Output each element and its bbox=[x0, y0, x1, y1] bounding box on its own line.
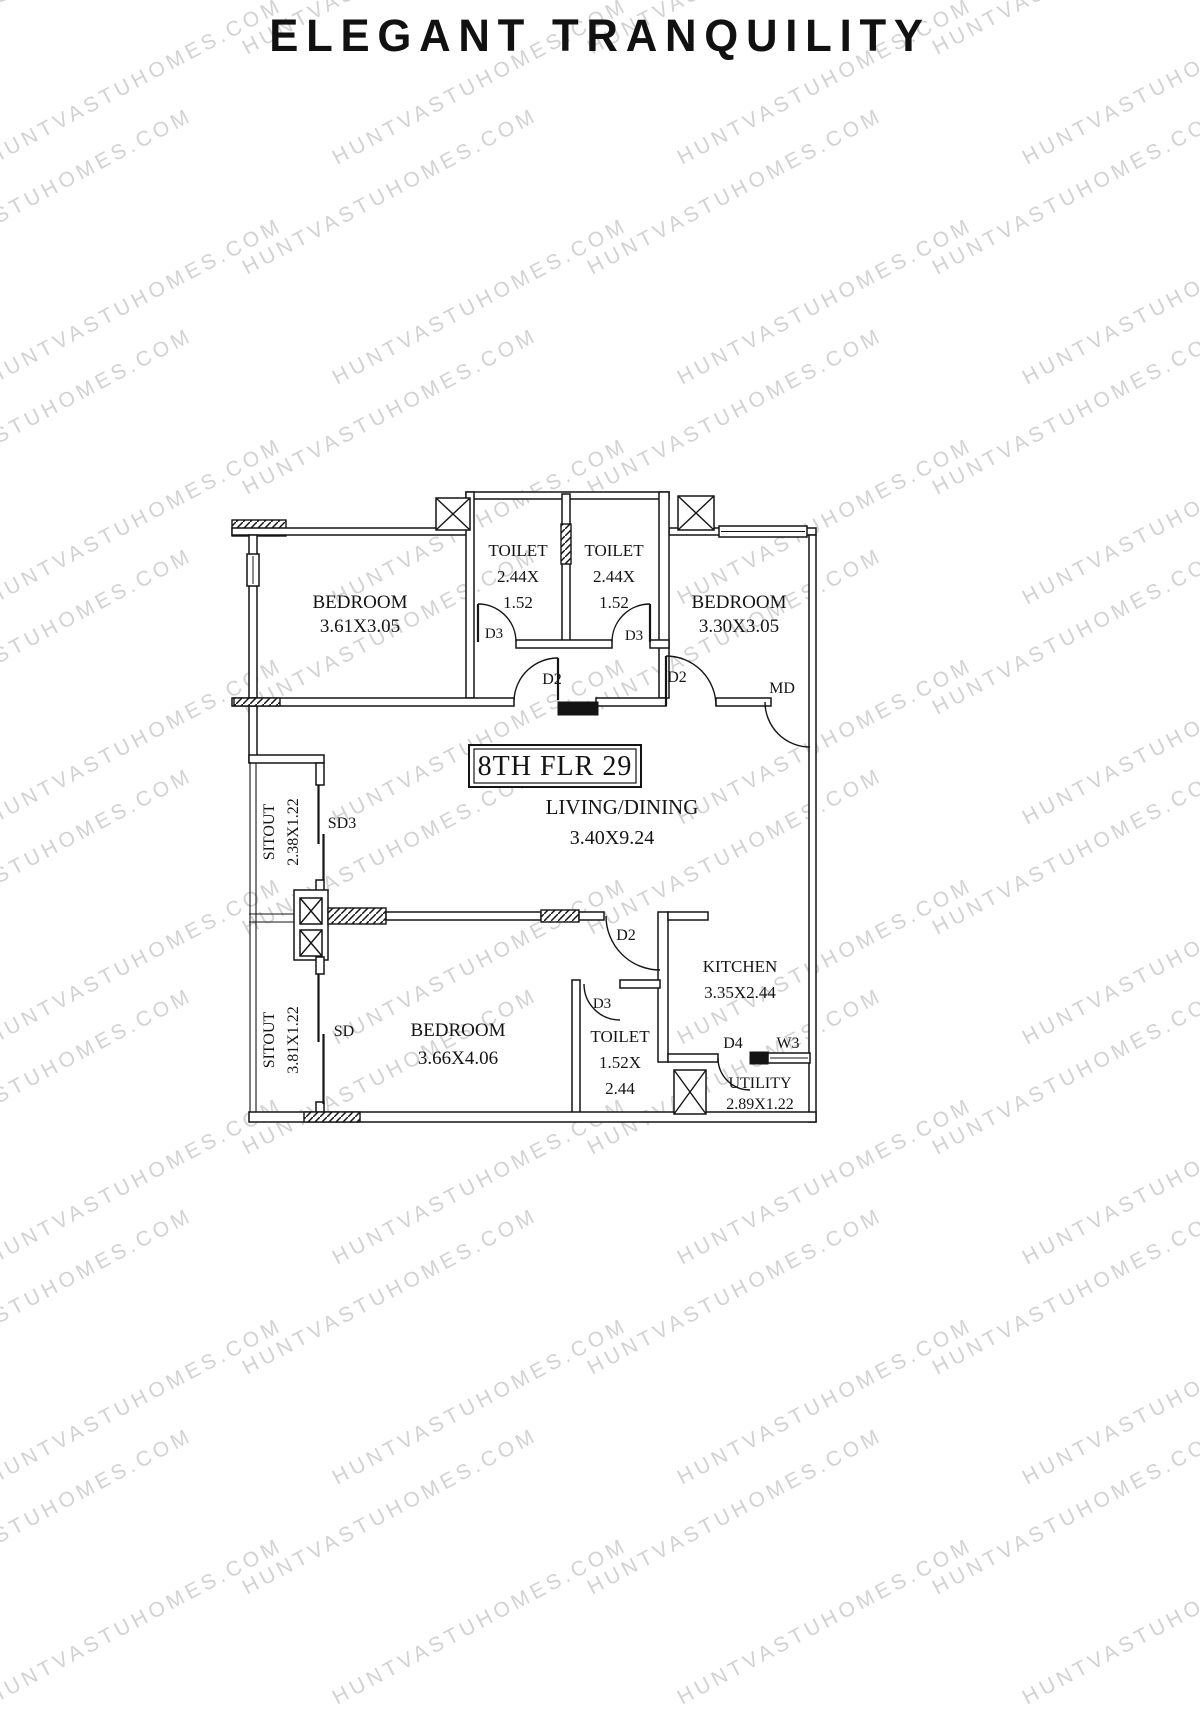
door-label-d3-toilet2: D3 bbox=[625, 628, 643, 644]
door-label-d3-toilet3: D3 bbox=[593, 996, 611, 1012]
room-label-bedroom-top-right: BEDROOM bbox=[691, 592, 786, 613]
door-label-d2-bedroom2: D2 bbox=[667, 669, 687, 686]
window-label-w3: W3 bbox=[776, 1035, 799, 1052]
room-dims-bedroom-top-left: 3.61X3.05 bbox=[320, 616, 400, 637]
room-dims-toilet-top-right-2: 1.52 bbox=[599, 593, 629, 612]
room-label-living-dining: LIVING/DINING bbox=[546, 795, 699, 819]
door-label-d4-utility: D4 bbox=[723, 1035, 743, 1052]
room-dims-toilet-bottom-1: 1.52X bbox=[599, 1053, 641, 1072]
door-label-sd: SD bbox=[334, 1023, 354, 1040]
hatched-wall-midwall-right bbox=[541, 910, 579, 922]
page-title: ELEGANT TRANQUILITY bbox=[18, 10, 1182, 62]
room-dims-sitout-lower: 3.81X1.22 bbox=[285, 1006, 302, 1074]
hatched-wall-bottom bbox=[304, 1112, 360, 1122]
hatched-wall-toilets bbox=[561, 524, 571, 564]
room-label-bedroom-bottom: BEDROOM bbox=[410, 1020, 505, 1041]
room-dims-toilet-top-left-2: 1.52 bbox=[503, 593, 533, 612]
room-dims-sitout-upper: 2.38X1.22 bbox=[285, 798, 302, 866]
door-arc-main-door bbox=[765, 702, 810, 747]
room-dims-toilet-bottom-2: 2.44 bbox=[605, 1079, 635, 1098]
room-dims-living-dining: 3.40X9.24 bbox=[570, 827, 654, 849]
walls bbox=[232, 492, 816, 1122]
room-label-toilet-top-left: TOILET bbox=[488, 541, 548, 560]
watermark-text: HUNTVASTUHOMES.COM bbox=[329, 1534, 632, 1710]
floor-label: 8TH FLR 29 bbox=[478, 751, 633, 782]
door-label-d2-bedroom3: D2 bbox=[616, 927, 636, 944]
room-label-utility: UTILITY bbox=[728, 1075, 792, 1092]
watermark-text: HUNTVASTUHOMES.COM bbox=[0, 1534, 287, 1710]
hatched-wall-midwall-left bbox=[328, 908, 386, 924]
room-dims-toilet-top-right-1: 2.44X bbox=[593, 567, 635, 586]
door-label-main-door: MD bbox=[769, 680, 795, 697]
room-label-toilet-bottom: TOILET bbox=[590, 1027, 650, 1046]
door-label-d3-toilet1: D3 bbox=[485, 626, 503, 642]
watermark-text: HUNTVASTUHOMES.COM bbox=[1019, 1534, 1200, 1710]
room-dims-utility: 2.89X1.22 bbox=[726, 1096, 794, 1113]
door-label-d2-bedroom1: D2 bbox=[542, 671, 562, 688]
room-dims-toilet-top-left-1: 2.44X bbox=[497, 567, 539, 586]
room-label-bedroom-top-left: BEDROOM bbox=[312, 592, 407, 613]
room-label-sitout-upper: SITOUT bbox=[261, 803, 278, 860]
room-dims-bedroom-bottom: 3.66X4.06 bbox=[418, 1048, 498, 1069]
room-label-sitout-lower: SITOUT bbox=[261, 1011, 278, 1068]
room-dims-bedroom-top-right: 3.30X3.05 bbox=[699, 616, 779, 637]
wall-pier bbox=[750, 1052, 768, 1064]
room-dims-kitchen: 3.35X2.44 bbox=[704, 983, 776, 1002]
room-label-toilet-top-right: TOILET bbox=[584, 541, 644, 560]
room-label-kitchen: KITCHEN bbox=[703, 957, 778, 976]
floor-label-box: 8TH FLR 29 bbox=[469, 745, 641, 787]
hatched-wall-divider bbox=[234, 698, 280, 706]
watermark-text: HUNTVASTUHOMES.COM bbox=[674, 1534, 977, 1710]
door-threshold-solid bbox=[558, 702, 598, 715]
door-label-sd3: SD3 bbox=[328, 815, 356, 832]
floor-plan: BEDROOM 3.61X3.05 TOILET 2.44X 1.52 TOIL… bbox=[222, 452, 834, 1132]
